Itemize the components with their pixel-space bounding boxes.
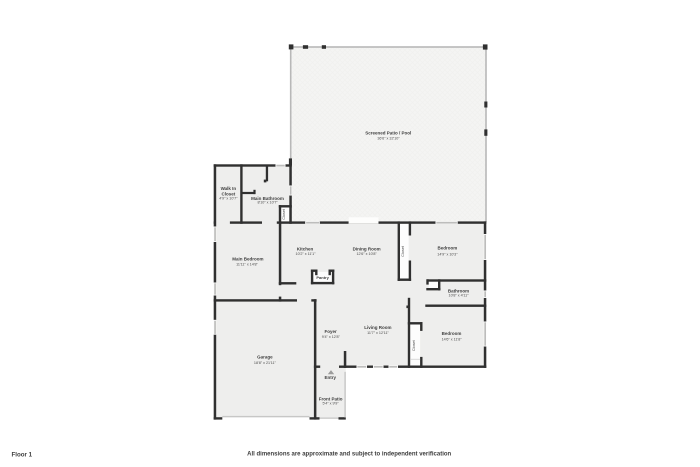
svg-text:Garage: Garage — [257, 354, 273, 359]
svg-text:12'6" x 10'8": 12'6" x 10'8" — [356, 252, 377, 256]
svg-text:Floor 1: Floor 1 — [12, 452, 33, 459]
svg-text:Screened Patio / Pool: Screened Patio / Pool — [365, 131, 411, 136]
svg-text:14'9" x 10'3": 14'9" x 10'3" — [437, 252, 458, 256]
svg-text:8'10" x 10'7": 8'10" x 10'7" — [257, 200, 278, 204]
svg-text:Closet: Closet — [412, 339, 416, 351]
svg-text:4'9" x 10'7": 4'9" x 10'7" — [219, 196, 238, 200]
svg-text:5'4" x 9'9": 5'4" x 9'9" — [322, 401, 339, 405]
svg-text:9'4" x 12'8": 9'4" x 12'8" — [322, 335, 341, 339]
svg-text:36'6" x 32'10": 36'6" x 32'10" — [377, 136, 400, 140]
svg-text:14'6" x 11'8": 14'6" x 11'8" — [442, 337, 463, 341]
svg-text:11'7" x 12'11": 11'7" x 12'11" — [367, 331, 389, 335]
svg-text:Entry: Entry — [325, 375, 337, 380]
svg-text:Pantry: Pantry — [316, 275, 329, 280]
svg-text:10'8" x 4'11": 10'8" x 4'11" — [449, 294, 470, 298]
svg-text:18'8" x 21'11": 18'8" x 21'11" — [254, 361, 277, 365]
svg-text:10'2" x 11'1": 10'2" x 11'1" — [296, 252, 317, 256]
svg-text:All dimensions are approximate: All dimensions are approximate and subje… — [247, 452, 451, 458]
svg-text:Dining Room: Dining Room — [353, 246, 381, 251]
svg-text:Kitchen: Kitchen — [297, 246, 314, 251]
svg-text:Foyer: Foyer — [324, 329, 337, 334]
svg-text:Living Room: Living Room — [364, 325, 391, 330]
svg-text:Main Bedroom: Main Bedroom — [232, 257, 263, 262]
svg-text:Closet: Closet — [282, 208, 286, 220]
svg-text:11'11" x 14'8": 11'11" x 14'8" — [236, 262, 258, 266]
svg-text:Bedroom: Bedroom — [438, 245, 458, 250]
svg-text:Closet: Closet — [401, 245, 405, 257]
svg-text:Bedroom: Bedroom — [442, 331, 462, 336]
